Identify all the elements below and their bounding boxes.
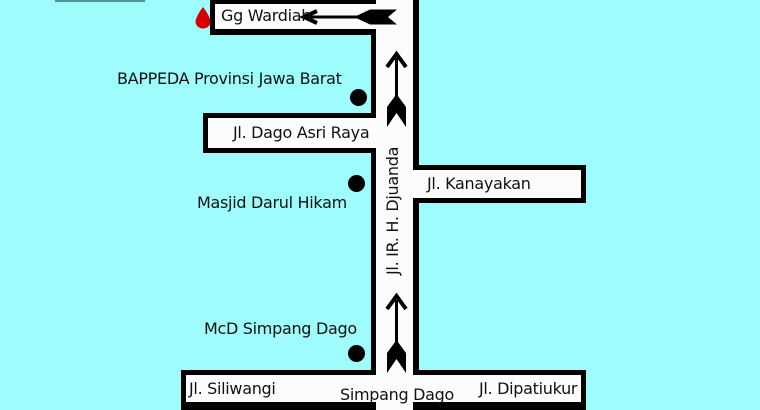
road-label-kanayakan: Jl. Kanayakan: [427, 174, 531, 194]
road-label-djuanda: Jl. IR. H. Djuanda: [383, 140, 407, 282]
hand-drawn-location-map: Gg Wardiah BAPPEDA Provinsi Jawa Barat J…: [0, 0, 760, 410]
place-label-mcd: McD Simpang Dago: [204, 319, 357, 339]
cropped-edge-artifact: [55, 0, 145, 2]
poi-dot-bappeda: [350, 89, 367, 106]
road-label-gg-wardiah: Gg Wardiah: [221, 6, 311, 26]
road-label-dago-asri: Jl. Dago Asri Raya: [233, 123, 369, 143]
red-drop-icon: [195, 7, 211, 29]
one-way-up-arrow-icon: [384, 292, 409, 374]
turn-left-arrow-icon: [300, 8, 412, 26]
place-label-masjid: Masjid Darul Hikam: [197, 193, 347, 213]
road-label-siliwangi: Jl. Siliwangi: [189, 379, 276, 399]
poi-dot-masjid: [348, 175, 365, 192]
road-label-dipatiukur: Jl. Dipatiukur: [479, 379, 577, 399]
road-label-simpang-dago: Simpang Dago: [340, 385, 454, 405]
one-way-up-arrow-icon: [384, 50, 409, 128]
place-label-bappeda: BAPPEDA Provinsi Jawa Barat: [117, 69, 342, 89]
poi-dot-mcd: [348, 345, 365, 362]
